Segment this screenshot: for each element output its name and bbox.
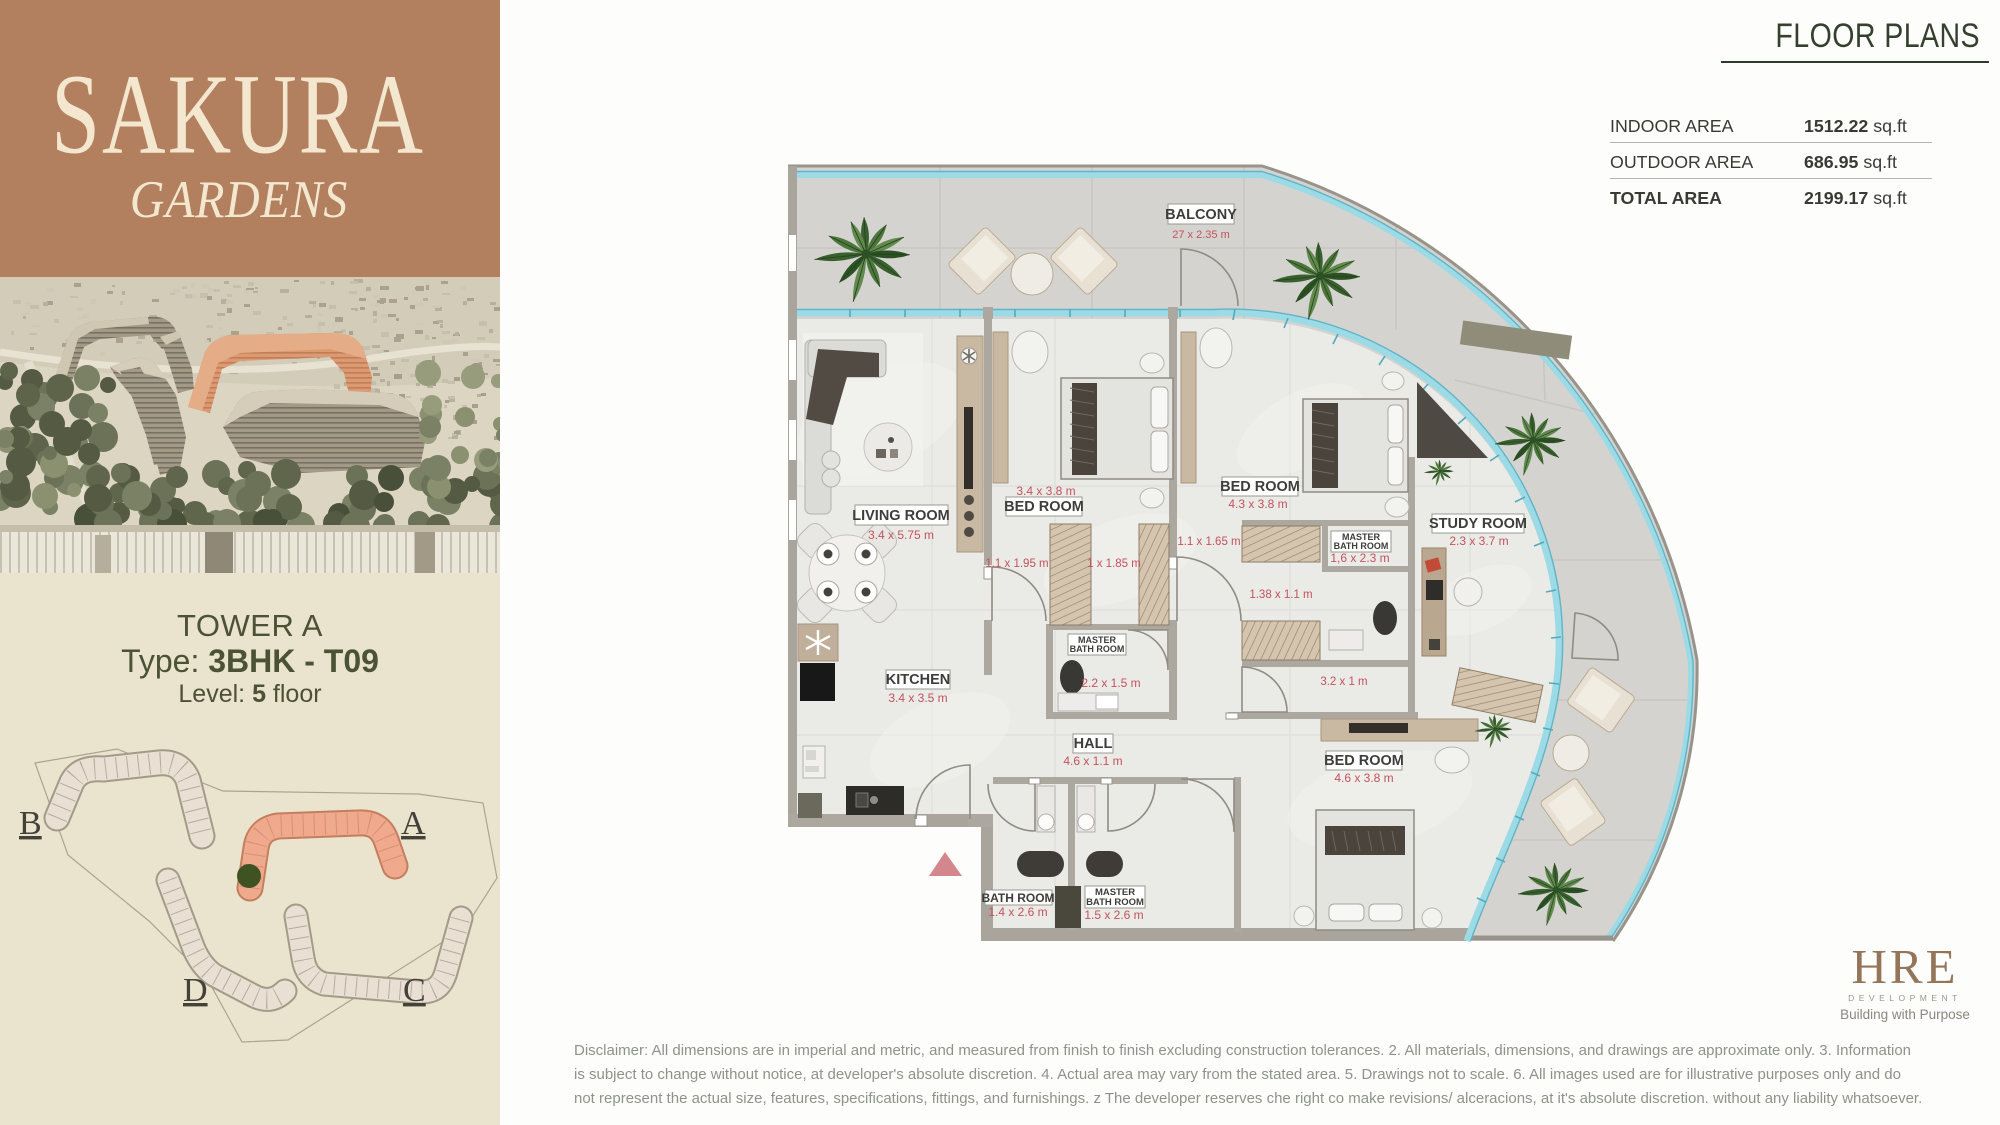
svg-text:3.4 x 3.5 m: 3.4 x 3.5 m <box>888 691 947 705</box>
svg-text:4.6 x 1.1 m: 4.6 x 1.1 m <box>1063 754 1122 768</box>
svg-text:LIVING ROOM: LIVING ROOM <box>852 508 949 524</box>
svg-text:BATH ROOM: BATH ROOM <box>1086 897 1144 908</box>
svg-text:1.1 x 1.65 m: 1.1 x 1.65 m <box>1177 536 1240 548</box>
svg-text:2.3 x 3.7 m: 2.3 x 3.7 m <box>1449 534 1508 548</box>
svg-text:2.2 x 1.5 m: 2.2 x 1.5 m <box>1081 676 1140 690</box>
svg-text:1.4 x 2.6 m: 1.4 x 2.6 m <box>988 905 1047 919</box>
svg-text:1.1 x 1.95 m: 1.1 x 1.95 m <box>985 558 1048 570</box>
svg-text:27 x 2.35 m: 27 x 2.35 m <box>1172 229 1229 241</box>
svg-text:KITCHEN: KITCHEN <box>886 672 950 688</box>
svg-text:1 x 1.85 m: 1 x 1.85 m <box>1087 558 1141 570</box>
svg-text:HALL: HALL <box>1074 736 1113 752</box>
svg-text:4.3 x 3.8 m: 4.3 x 3.8 m <box>1228 497 1287 511</box>
svg-text:STUDY ROOM: STUDY ROOM <box>1429 516 1527 532</box>
svg-text:BED ROOM: BED ROOM <box>1220 479 1300 495</box>
svg-text:BALCONY: BALCONY <box>1165 207 1237 223</box>
svg-text:1.5 x 2.6 m: 1.5 x 2.6 m <box>1084 908 1143 922</box>
svg-text:BED ROOM: BED ROOM <box>1324 753 1404 769</box>
svg-text:4.6 x 3.8 m: 4.6 x 3.8 m <box>1334 771 1393 785</box>
svg-text:1,6 x 2.3 m: 1,6 x 2.3 m <box>1330 551 1389 565</box>
svg-text:BATH ROOM: BATH ROOM <box>981 891 1054 905</box>
svg-text:BATH ROOM: BATH ROOM <box>1070 644 1125 654</box>
svg-text:BED ROOM: BED ROOM <box>1004 499 1084 515</box>
svg-text:1.38 x 1.1 m: 1.38 x 1.1 m <box>1249 589 1312 601</box>
svg-text:3.4 x 5.75 m: 3.4 x 5.75 m <box>868 528 934 542</box>
svg-text:3.4 x 3.8 m: 3.4 x 3.8 m <box>1016 484 1075 498</box>
svg-text:3.2 x 1 m: 3.2 x 1 m <box>1320 676 1367 688</box>
svg-text:BATH ROOM: BATH ROOM <box>1334 541 1389 551</box>
